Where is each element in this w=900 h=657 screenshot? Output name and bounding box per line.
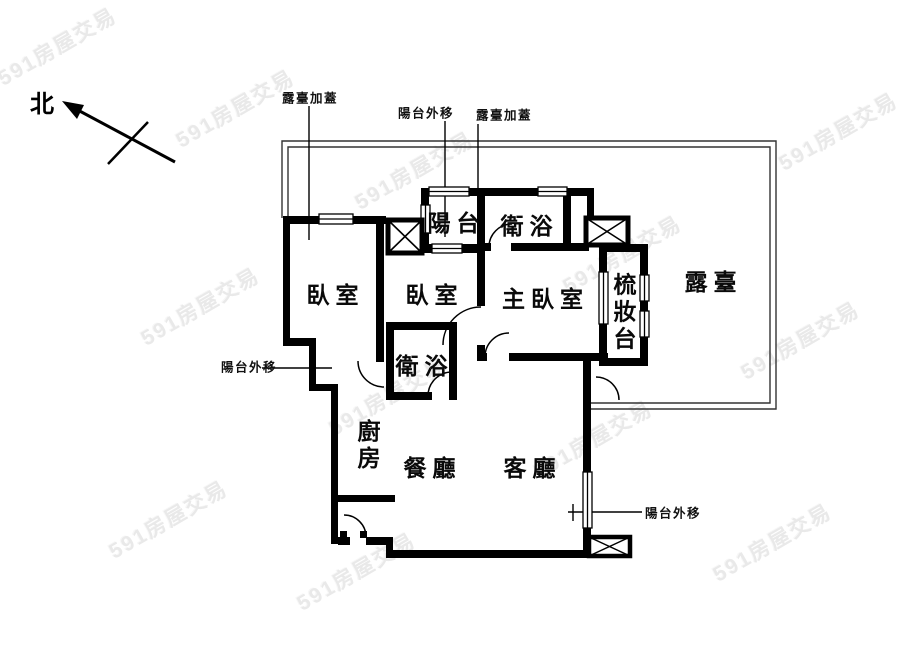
north-arrow bbox=[62, 101, 175, 164]
terrace-outline bbox=[282, 141, 776, 409]
floor-plan-drawing bbox=[0, 0, 900, 657]
shaft-boxes bbox=[388, 218, 630, 556]
door-posts bbox=[340, 531, 367, 538]
north-label: 北 bbox=[30, 84, 54, 119]
floor-plan-canvas: 591房屋交易591房屋交易591房屋交易591房屋交易591房屋交易591房屋… bbox=[0, 0, 900, 657]
